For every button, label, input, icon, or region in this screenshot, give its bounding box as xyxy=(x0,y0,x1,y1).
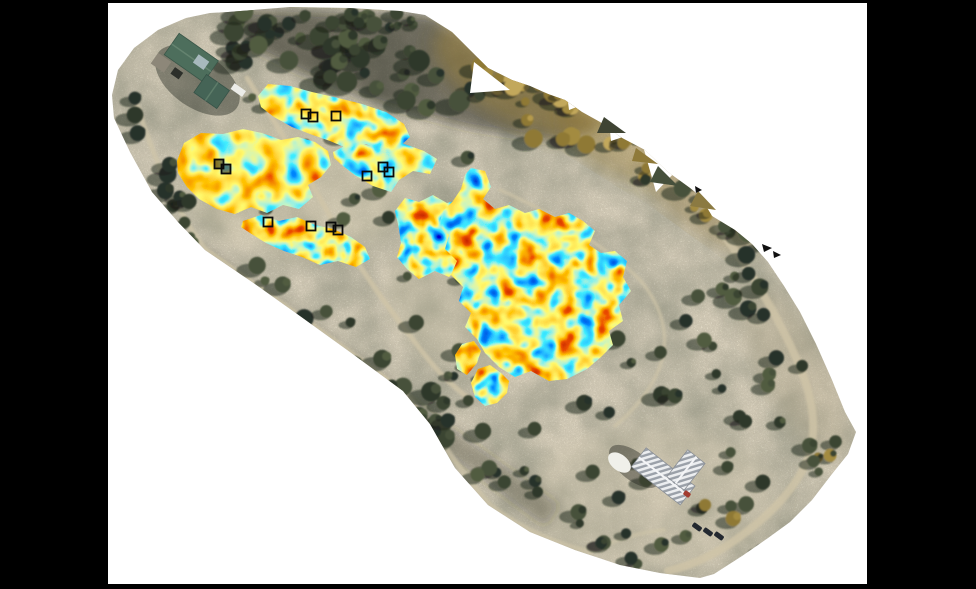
tree-canopy xyxy=(252,94,256,98)
tree-canopy xyxy=(726,447,736,457)
tree-canopy xyxy=(343,213,350,220)
tree-canopy xyxy=(532,486,543,497)
tree-canopy xyxy=(631,359,636,364)
tree-canopy xyxy=(127,107,144,124)
tree-canopy xyxy=(576,519,584,527)
tree-canopy xyxy=(138,127,146,135)
tree-canopy xyxy=(380,36,387,43)
tree-canopy xyxy=(661,539,668,546)
tree-canopy xyxy=(814,456,820,462)
tree-canopy xyxy=(577,135,595,153)
tree-canopy xyxy=(411,17,415,21)
tree-canopy xyxy=(337,71,358,92)
tree-canopy xyxy=(829,435,842,448)
tree-canopy xyxy=(248,257,265,274)
tree-canopy xyxy=(323,70,337,84)
tree-canopy xyxy=(181,194,196,209)
tree-canopy xyxy=(619,492,626,499)
tree-canopy xyxy=(686,531,692,537)
tree-canopy xyxy=(830,450,836,456)
tree-canopy xyxy=(563,134,570,141)
tree-canopy xyxy=(654,346,667,359)
tree-canopy xyxy=(737,246,755,264)
tree-canopy xyxy=(742,267,756,281)
tree-canopy xyxy=(436,69,444,77)
tree-canopy xyxy=(397,91,416,110)
tree-canopy xyxy=(727,462,733,468)
tree-canopy xyxy=(535,476,541,482)
tree-canopy xyxy=(382,211,395,224)
tree-canopy xyxy=(382,352,391,361)
tree-canopy xyxy=(135,93,141,99)
orthomosaic-survey-map xyxy=(0,0,976,589)
tree-canopy xyxy=(409,315,424,330)
tree-canopy xyxy=(283,278,291,286)
tree-canopy xyxy=(279,51,298,70)
survey-marker-square xyxy=(222,165,231,174)
tree-canopy xyxy=(527,115,533,121)
tree-canopy xyxy=(738,496,754,512)
figure-slide xyxy=(0,0,976,589)
tree-canopy xyxy=(733,512,741,520)
tree-canopy xyxy=(498,475,511,488)
tree-canopy xyxy=(712,369,722,379)
tree-canopy xyxy=(449,90,470,111)
tree-canopy xyxy=(769,369,776,376)
tree-canopy xyxy=(603,406,615,418)
tree-canopy xyxy=(431,384,441,394)
tree-canopy xyxy=(768,380,775,387)
tree-canopy xyxy=(691,289,705,303)
tree-canopy xyxy=(258,17,272,31)
tree-canopy xyxy=(349,44,360,55)
tree-canopy xyxy=(320,305,333,318)
tree-canopy xyxy=(780,418,786,424)
tree-canopy xyxy=(412,84,420,92)
tree-canopy xyxy=(374,18,382,26)
tree-canopy xyxy=(521,97,530,106)
tree-canopy xyxy=(675,390,682,397)
tree-canopy xyxy=(624,552,637,565)
tree-canopy xyxy=(769,350,784,365)
tree-canopy xyxy=(332,17,339,24)
tree-canopy xyxy=(699,499,711,511)
tree-canopy xyxy=(265,277,270,282)
tree-canopy xyxy=(755,475,770,490)
tree-canopy xyxy=(165,184,173,192)
tree-canopy xyxy=(408,50,430,72)
tree-canopy xyxy=(814,467,823,476)
tree-canopy xyxy=(467,152,474,159)
tree-canopy xyxy=(739,415,752,428)
tree-canopy xyxy=(646,175,651,180)
tree-canopy xyxy=(585,465,599,479)
tree-canopy xyxy=(403,272,412,281)
tree-canopy xyxy=(679,314,692,327)
tree-canopy xyxy=(757,308,770,321)
tree-canopy xyxy=(584,396,592,404)
tree-canopy xyxy=(524,129,542,147)
tree-canopy xyxy=(474,423,491,440)
tree-canopy xyxy=(621,528,631,538)
tree-canopy xyxy=(377,82,384,89)
tree-canopy xyxy=(305,11,311,17)
tree-canopy xyxy=(748,302,756,310)
tree-canopy xyxy=(463,395,474,406)
tree-canopy xyxy=(571,129,580,138)
tree-canopy xyxy=(524,467,529,472)
tree-canopy xyxy=(350,318,355,323)
tree-canopy xyxy=(445,430,455,440)
tree-canopy xyxy=(427,101,436,110)
tree-canopy xyxy=(353,17,364,28)
tree-canopy xyxy=(810,439,818,447)
tree-canopy xyxy=(448,415,455,422)
tree-canopy xyxy=(760,280,769,289)
tree-canopy xyxy=(471,468,485,482)
tree-canopy xyxy=(718,384,727,393)
tree-canopy xyxy=(355,194,361,200)
tree-canopy xyxy=(697,333,712,348)
tree-canopy xyxy=(578,506,586,514)
tree-canopy xyxy=(170,158,178,166)
tree-canopy xyxy=(722,284,729,291)
tree-canopy xyxy=(331,40,340,49)
tree-canopy xyxy=(601,538,607,544)
tree-canopy xyxy=(796,360,808,372)
tree-canopy xyxy=(249,36,267,54)
tree-canopy xyxy=(448,372,452,376)
tree-canopy xyxy=(528,422,542,436)
tree-canopy xyxy=(725,500,737,512)
tree-canopy xyxy=(351,9,358,16)
tree-canopy xyxy=(443,397,450,404)
tree-canopy xyxy=(348,30,358,40)
